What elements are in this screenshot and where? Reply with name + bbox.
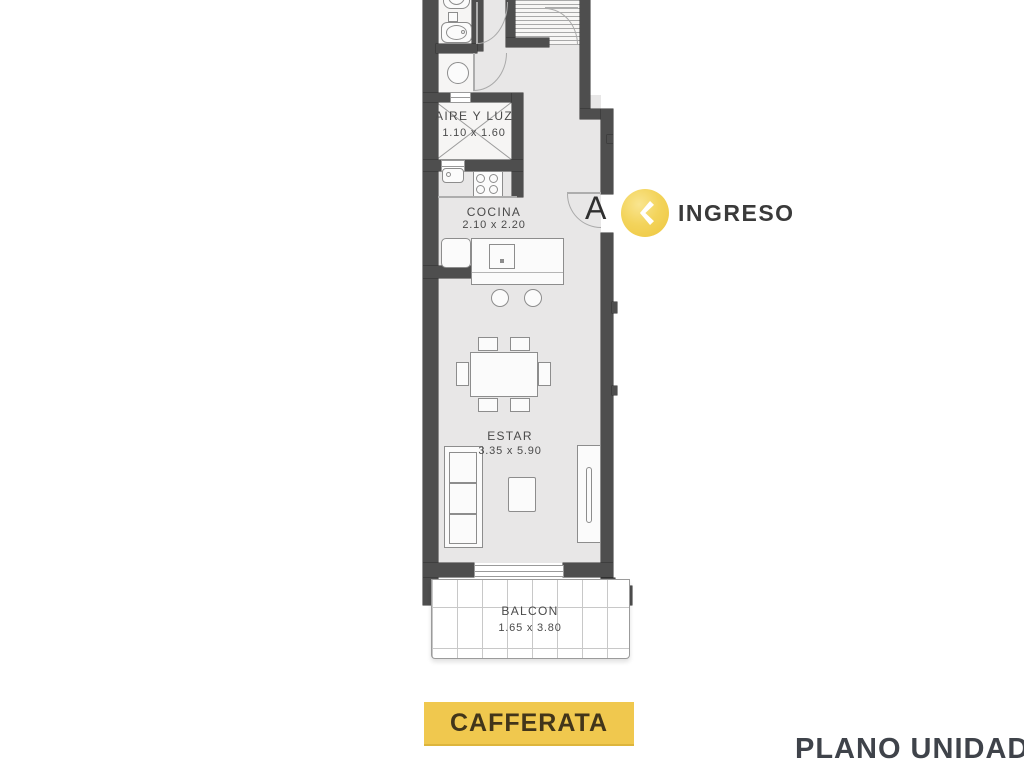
stove-burner [489, 174, 498, 183]
wall-kitchen-top [423, 160, 523, 171]
tv-unit-handle [586, 467, 592, 523]
sofa-cushion [449, 483, 477, 514]
kitchen-island [471, 238, 564, 285]
dining-chair [478, 337, 498, 351]
wall-lightwell-top [423, 93, 523, 102]
room-dims-aire-y-luz: 1.10 x 1.60 [442, 127, 505, 139]
fridge [441, 238, 471, 268]
room-dims-balcon: 1.65 x 3.80 [498, 622, 561, 634]
wall-tick-upper [607, 135, 613, 143]
lightwell-window-top [450, 92, 471, 103]
dining-chair [510, 337, 530, 351]
wall-tick-low [612, 386, 617, 395]
room-label-balcon: BALCON [501, 604, 558, 618]
sofa-cushion [449, 514, 477, 544]
ingreso-marker [621, 189, 669, 237]
room-dims-cocina: 2.10 x 2.20 [462, 219, 525, 231]
wall-right-mid [601, 109, 613, 194]
wall-bottom-right [563, 563, 613, 577]
dining-chair [510, 398, 530, 412]
balcony-deck [431, 579, 630, 659]
brand-banner: CAFFERATA [424, 702, 634, 746]
room-label-estar: ESTAR [487, 429, 533, 443]
stool [491, 289, 509, 307]
dining-chair [538, 362, 551, 386]
stool [524, 289, 542, 307]
wall-bottom-left [423, 563, 474, 577]
wall-bathroom-laundry [436, 44, 477, 53]
island-sink-drain [500, 259, 504, 263]
room-dims-estar: 3.35 x 5.90 [478, 445, 541, 457]
room-label-cocina: COCINA [467, 205, 521, 219]
island-divider [472, 272, 563, 273]
wall-tick-mid [612, 302, 617, 313]
coffee-table [508, 477, 536, 512]
floor-plan-page: AIRE Y LUZ 1.10 x 1.60 COCINA 2.10 x 2.2… [0, 0, 1024, 768]
ingreso-label: INGRESO [678, 200, 795, 227]
dining-chair [456, 362, 469, 386]
kitchen-sink-drain [446, 172, 451, 177]
wall-stair-bottom [506, 38, 549, 47]
wall-right-top [580, 0, 590, 118]
sofa-cushion [449, 452, 477, 483]
plan-caption: PLANO UNIDAD [795, 733, 1024, 766]
wall-left-outer [423, 0, 438, 605]
wall-kitchen-right [512, 93, 523, 197]
entry-door-letter: A [585, 192, 606, 224]
stove-burner [489, 185, 498, 194]
island-sink [489, 244, 515, 269]
dining-chair [478, 398, 498, 412]
dining-table [470, 352, 538, 397]
room-label-aire-y-luz: AIRE Y LUZ [435, 109, 513, 123]
balcony-grid-line [432, 648, 629, 649]
flush-box [448, 12, 458, 22]
washer [447, 62, 469, 84]
bidet-tap [461, 30, 465, 34]
stove-burner [476, 185, 485, 194]
balcony-sliding-door [474, 565, 564, 577]
counter-edge [438, 196, 517, 198]
chevron-left-icon [636, 201, 654, 225]
stove-burner [476, 174, 485, 183]
wall-right-lower [601, 233, 613, 578]
